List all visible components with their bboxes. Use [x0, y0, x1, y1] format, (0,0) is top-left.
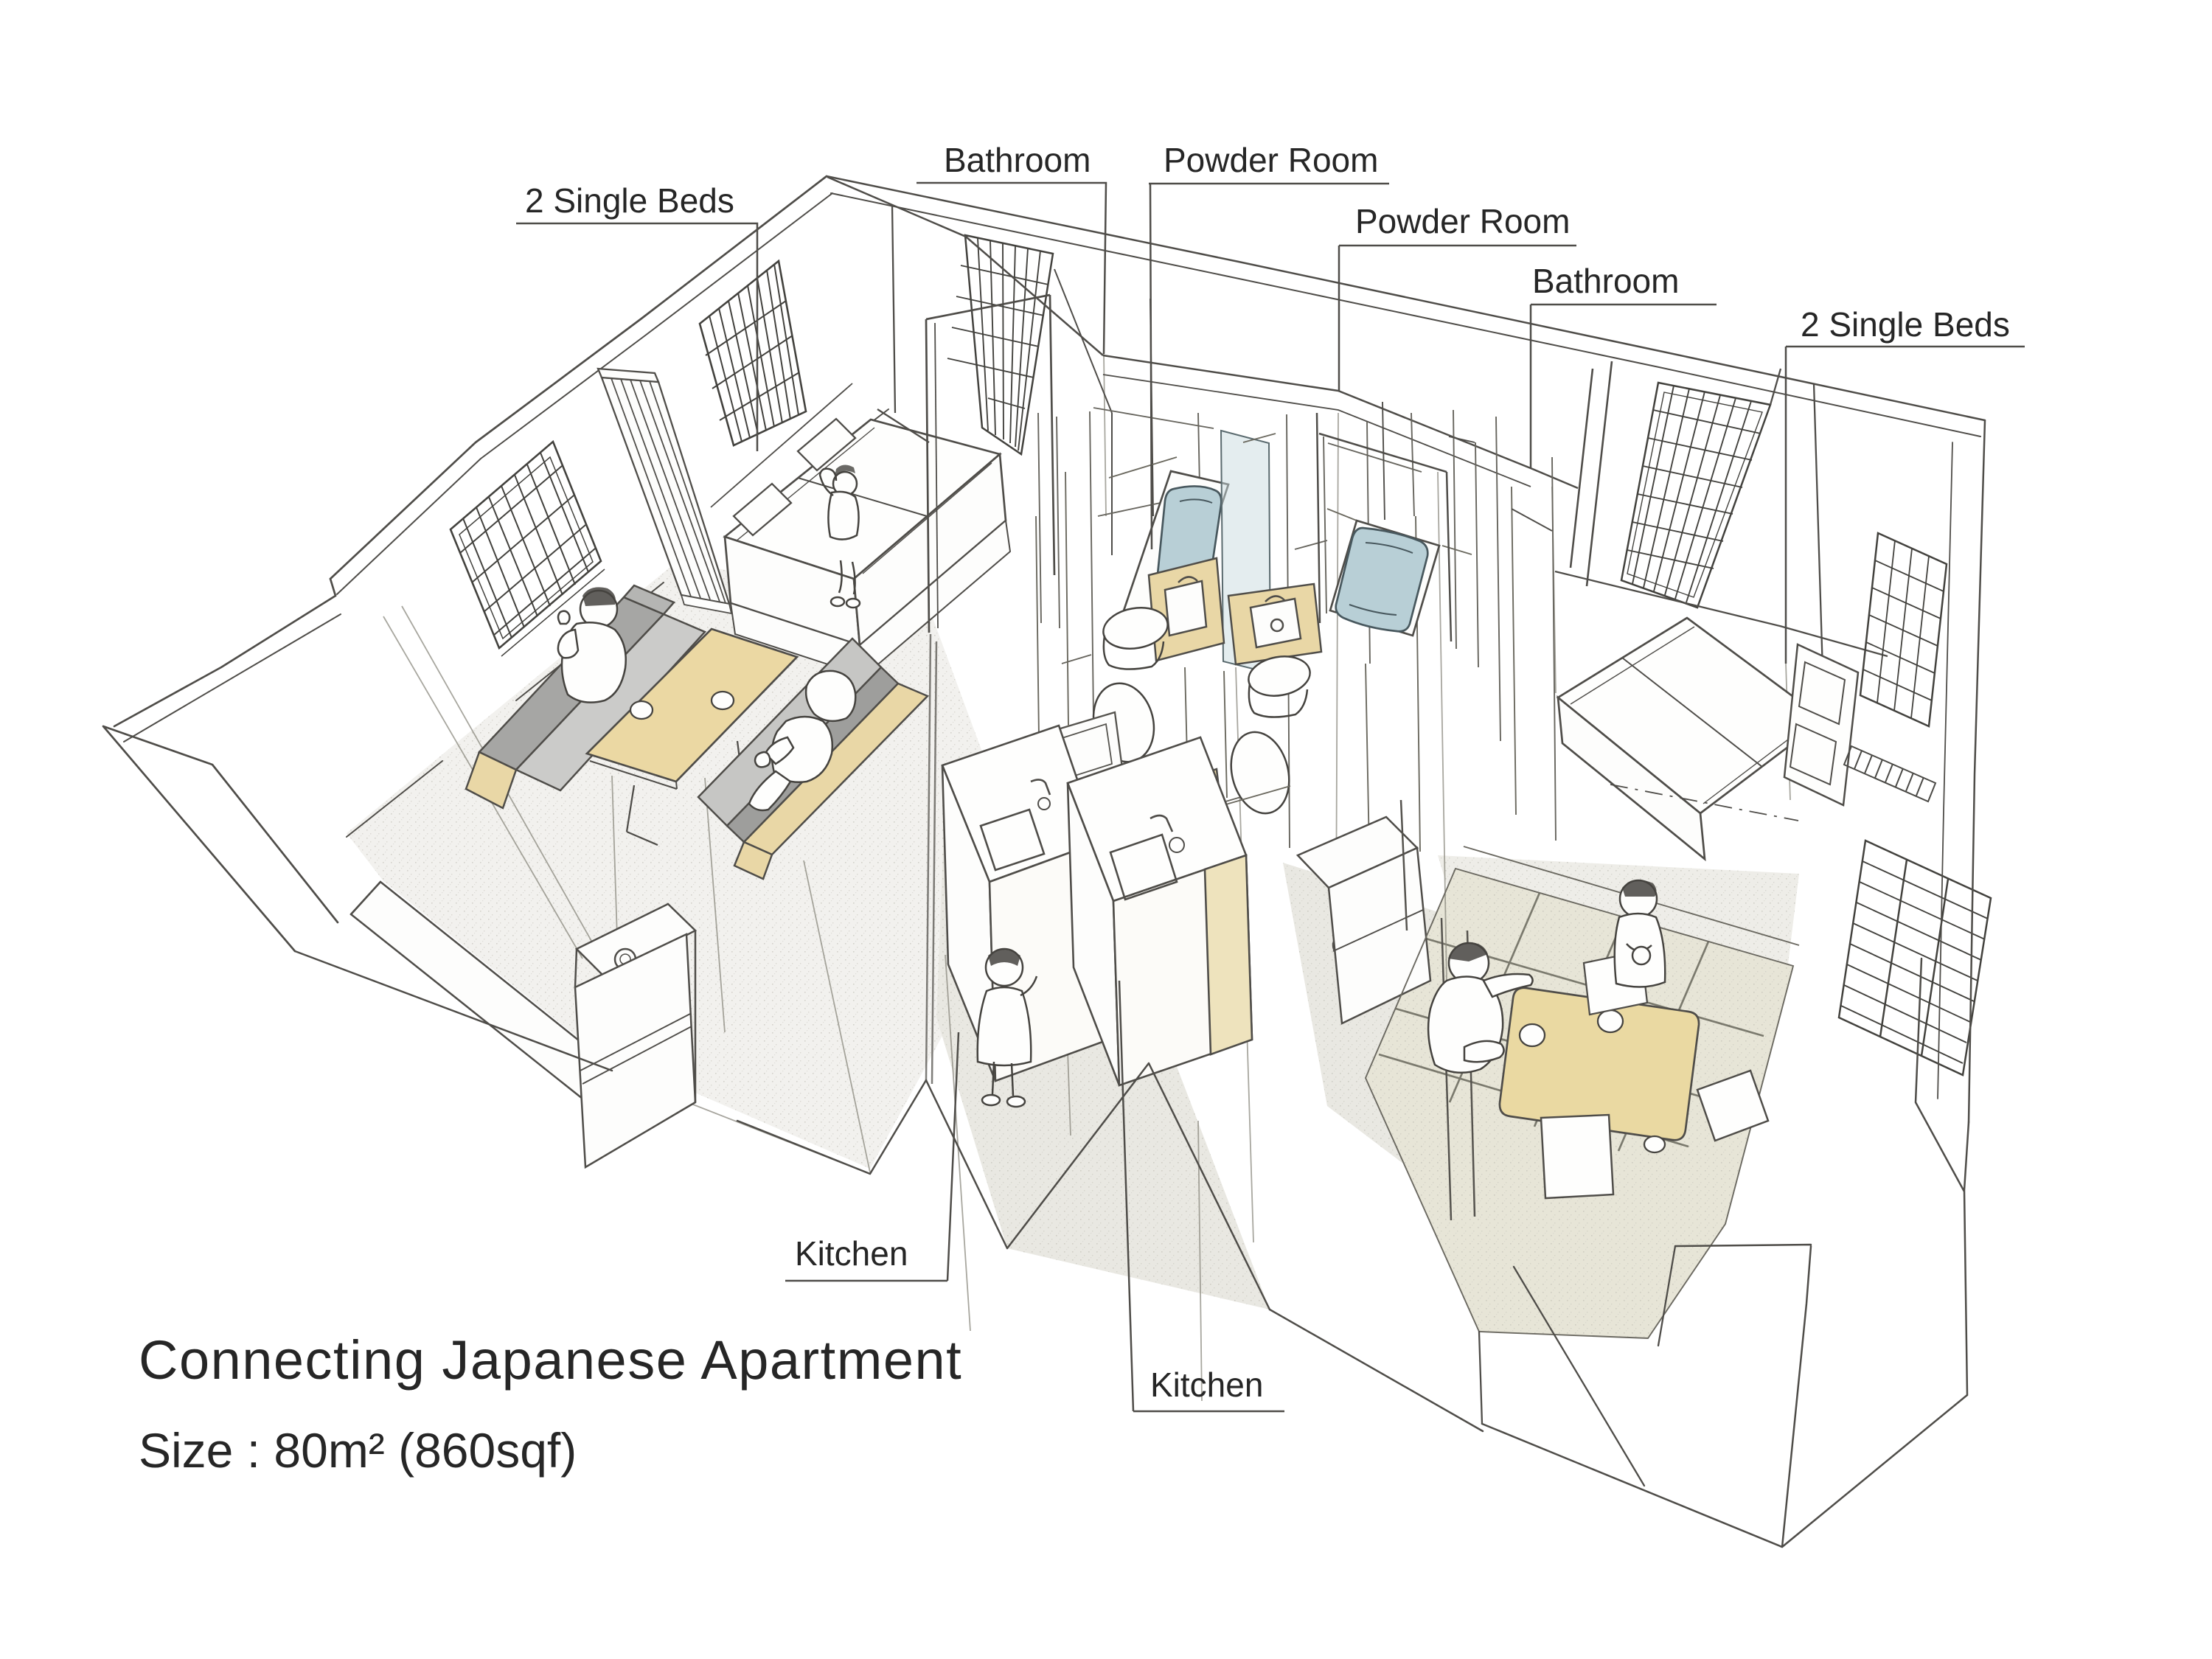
- svg-text:2 Single Beds: 2 Single Beds: [1801, 305, 2010, 344]
- svg-text:Powder Room: Powder Room: [1355, 202, 1570, 240]
- svg-text:Kitchen: Kitchen: [1150, 1366, 1263, 1404]
- svg-text:2 Single Beds: 2 Single Beds: [525, 181, 734, 220]
- svg-text:Bathroom: Bathroom: [944, 141, 1091, 179]
- svg-text:Powder Room: Powder Room: [1164, 141, 1378, 179]
- svg-text:Connecting Japanese Apartment: Connecting Japanese Apartment: [139, 1329, 962, 1391]
- svg-text:Kitchen: Kitchen: [795, 1234, 908, 1273]
- svg-text:Bathroom: Bathroom: [1532, 262, 1679, 300]
- svg-text:Size : 80m² (860sqf): Size : 80m² (860sqf): [139, 1423, 577, 1478]
